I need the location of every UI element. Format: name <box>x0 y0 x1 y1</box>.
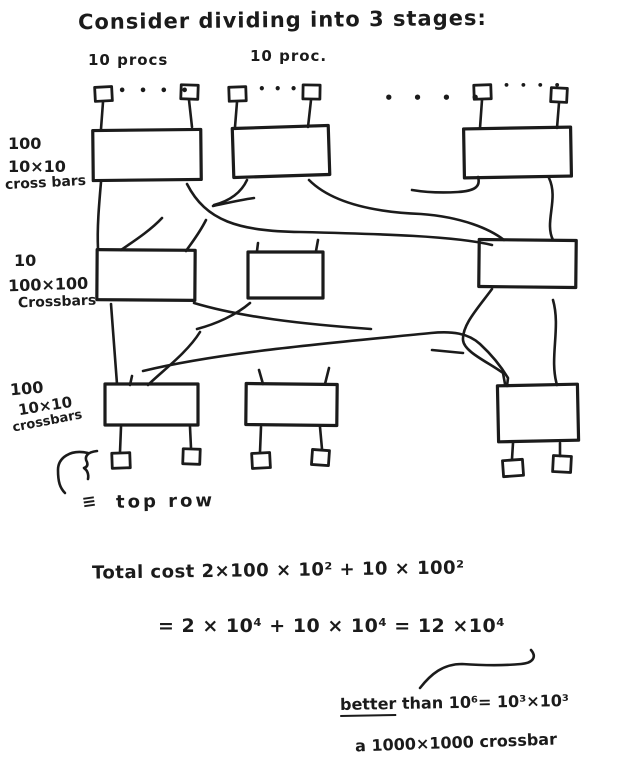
output-box <box>553 456 572 473</box>
stage1-crossbar-row <box>93 126 572 181</box>
stage1-crossbar-3 <box>464 127 572 178</box>
result-arrow <box>420 650 534 688</box>
better-word-underlined: better <box>340 694 397 717</box>
ellipsis-group2: • • • <box>258 82 299 96</box>
stage2-crossbar-row <box>97 239 576 300</box>
ellipsis-middle: • • • • <box>384 89 487 107</box>
ellipsis-group3: • • • • <box>503 79 564 92</box>
sum-line: = 2 × 10⁴ + 10 × 10⁴ = 12 ×10⁴ <box>158 615 505 637</box>
wire <box>189 100 192 127</box>
wire <box>190 427 191 448</box>
brace-annotation <box>58 451 97 493</box>
top-row-note: top row <box>116 490 215 513</box>
stage3-crossbar-1 <box>105 384 198 425</box>
output-box <box>502 459 523 476</box>
equivalence-symbol: ≡ <box>81 491 98 513</box>
wire <box>257 243 258 251</box>
wire <box>260 427 261 452</box>
output-box <box>252 453 271 469</box>
wire <box>186 220 206 251</box>
wire <box>120 427 121 452</box>
stage1-count: 100 <box>8 134 41 153</box>
stage3-crossbar-2 <box>246 384 337 426</box>
wire <box>432 350 463 353</box>
wire <box>213 198 254 206</box>
network-diagram <box>0 0 619 767</box>
wire <box>235 102 237 127</box>
wire <box>549 178 553 240</box>
wire <box>121 218 162 250</box>
output-squares <box>112 427 572 477</box>
wire <box>98 182 101 249</box>
stage3-crossbar-3 <box>497 384 578 442</box>
stage2-size: 100×100 <box>8 274 89 296</box>
wire <box>111 304 117 384</box>
handwritten-notes-page: Consider dividing into 3 stages: 10 proc… <box>0 0 619 767</box>
wire <box>259 370 263 384</box>
stage3-count: 100 <box>9 378 44 400</box>
wire <box>101 102 103 129</box>
processor-box <box>95 87 113 102</box>
stage1-size: 10×10 <box>8 157 66 176</box>
ellipsis-group1: • • • • <box>118 84 193 99</box>
output-box <box>183 449 201 465</box>
stage2-crossbar-2 <box>248 252 323 298</box>
stage1-crossbar-1 <box>93 129 202 180</box>
processor-box <box>303 85 320 99</box>
brace-curl <box>58 452 88 493</box>
stage2-kind: Crossbars <box>18 293 97 312</box>
processor-box <box>229 87 246 102</box>
curly-brace <box>84 451 97 479</box>
wire <box>308 100 311 127</box>
page-title: Consider dividing into 3 stages: <box>78 6 487 34</box>
wire <box>325 368 329 384</box>
column-label-1: 10 procs <box>88 51 168 69</box>
wire <box>557 103 559 128</box>
better-line: better than 10⁶= 10³×10³ <box>340 691 569 714</box>
stage2-crossbar-1 <box>97 250 195 301</box>
wire <box>316 240 318 251</box>
wire <box>320 427 322 449</box>
stage1-crossbar-2 <box>232 126 329 178</box>
output-box <box>311 449 329 465</box>
output-box <box>112 453 131 469</box>
better-line-rest: than 10⁶= 10³×10³ <box>396 691 569 713</box>
wire <box>194 303 371 329</box>
wire <box>148 332 200 385</box>
stage2-crossbar-3 <box>479 239 576 287</box>
stage3-crossbar-row <box>105 384 579 442</box>
wire <box>553 300 557 385</box>
column-label-2: 10 proc. <box>250 47 327 65</box>
stage2-count: 10 <box>14 251 36 270</box>
wires-stage2-stage3 <box>111 289 557 386</box>
wire <box>512 443 513 459</box>
